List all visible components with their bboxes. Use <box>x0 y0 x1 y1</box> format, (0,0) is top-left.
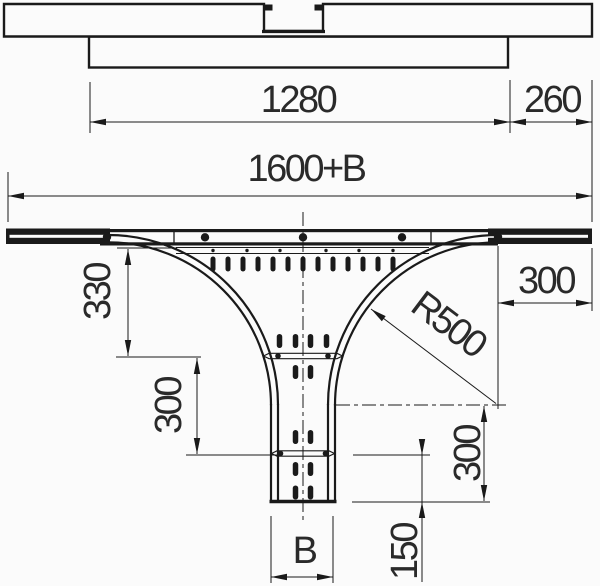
dim-label-330: 330 <box>77 263 119 320</box>
technical-drawing-canvas: 1280 260 1600+B <box>0 0 600 586</box>
notch-tab-right <box>315 5 323 11</box>
side-view-lower-bar <box>89 37 508 68</box>
add-on-tee-dimension-drawing: 1280 260 1600+B <box>0 0 600 586</box>
dim-label-1280: 1280 <box>261 79 337 121</box>
dimension-1280: 1280 <box>90 79 510 133</box>
dimension-300-right-vertical: 300 <box>447 406 489 501</box>
dimension-330: 330 <box>77 248 201 357</box>
dimension-B: B <box>271 516 333 583</box>
dim-label-1600B: 1600+B <box>247 148 365 190</box>
dim-label-B: B <box>293 530 317 572</box>
notch-tab-left <box>265 5 273 11</box>
dimension-260: 260 <box>510 79 592 222</box>
dim-label-300-run: 300 <box>518 260 575 302</box>
dimension-R500: R500 <box>371 283 496 403</box>
dim-label-150: 150 <box>384 523 426 580</box>
dim-label-R500: R500 <box>403 283 494 366</box>
dim-label-260: 260 <box>524 79 581 121</box>
side-view <box>4 4 592 68</box>
dim-label-300-lower: 300 <box>447 425 489 482</box>
dimension-300-left: 300 <box>148 358 278 455</box>
dimension-1600B: 1600+B <box>8 148 592 222</box>
tee-top-edge <box>100 229 498 232</box>
plan-view <box>6 212 592 520</box>
dimension-300-right-horizontal: 300 <box>498 246 592 409</box>
dim-label-300-left: 300 <box>148 377 190 434</box>
